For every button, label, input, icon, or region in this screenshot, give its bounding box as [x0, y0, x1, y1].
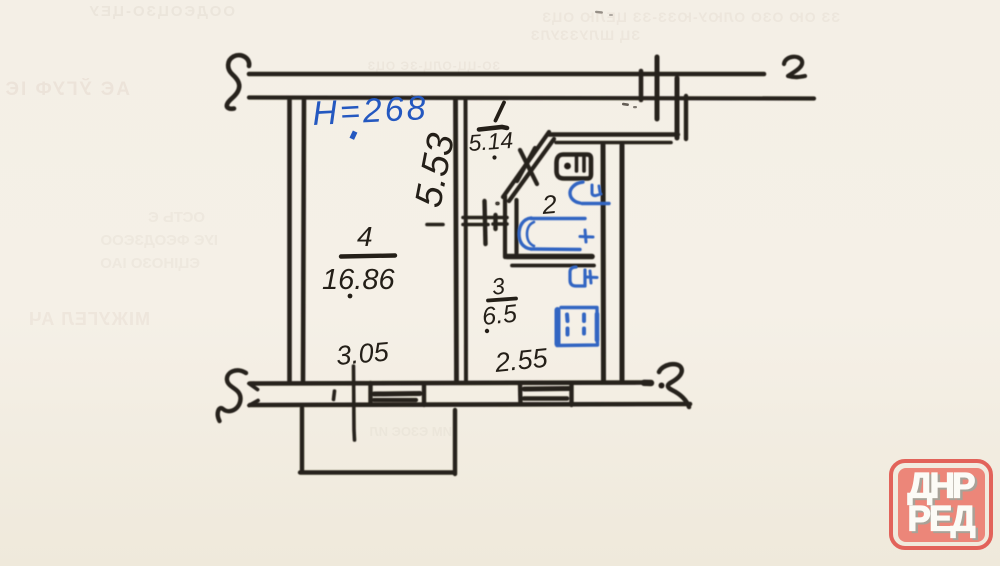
svg-text:16.86: 16.86: [322, 264, 395, 296]
svg-text:ОСТЬ Є: ОСТЬ Є: [148, 209, 205, 226]
svg-text:ЗЦ ШЛУЗЗУЛЗ: ЗЦ ШЛУЗЗУЛЗ: [530, 27, 640, 43]
svg-text:РЕД: РЕД: [908, 500, 976, 539]
svg-text:6.5: 6.5: [481, 299, 519, 330]
svg-text:3: 3: [490, 272, 506, 300]
svg-text:H=268: H=268: [311, 89, 429, 133]
svg-text:ЄЦІНОЗО ІАО: ЄЦІНОЗО ІАО: [100, 255, 200, 272]
svg-text:ІУЄ ФЄОДЗЄОО: ІУЄ ФЄОДЗЄОО: [100, 232, 218, 249]
svg-text:МІЖУГЕЛ АЧ: МІЖУГЕЛ АЧ: [28, 309, 150, 329]
svg-text:5.14: 5.14: [468, 127, 514, 156]
svg-text:АЄ ЎГУФ ІЄ: АЄ ЎГУФ ІЄ: [4, 78, 131, 100]
svg-text:ЗЗ ОЮ ОЗО ОЛЮУ-ЮЗЗ-ЗЗ ЦЕЛЮ ОЦЗ: ЗЗ ОЮ ОЗО ОЛЮУ-ЮЗЗ-ЗЗ ЦЕЛЮ ОЦЗ: [541, 9, 840, 25]
svg-text:ООДЄОЦЗО-ЦЕУ: ООДЄОЦЗО-ЦЕУ: [88, 3, 235, 20]
svg-text:ЗО-ЦЦ-ОЛЦ-ЗЄ ОЦЗ: ЗО-ЦЦ-ОЛЦ-ЗЄ ОЦЗ: [367, 59, 500, 73]
svg-text:2: 2: [540, 189, 559, 220]
svg-text:2.55: 2.55: [492, 343, 549, 379]
svg-text:4: 4: [357, 221, 373, 252]
svg-text:ИМ ЄЗОЄ ИЛ: ИМ ЄЗОЄ ИЛ: [370, 424, 452, 439]
svg-text:3.05: 3.05: [335, 336, 391, 371]
